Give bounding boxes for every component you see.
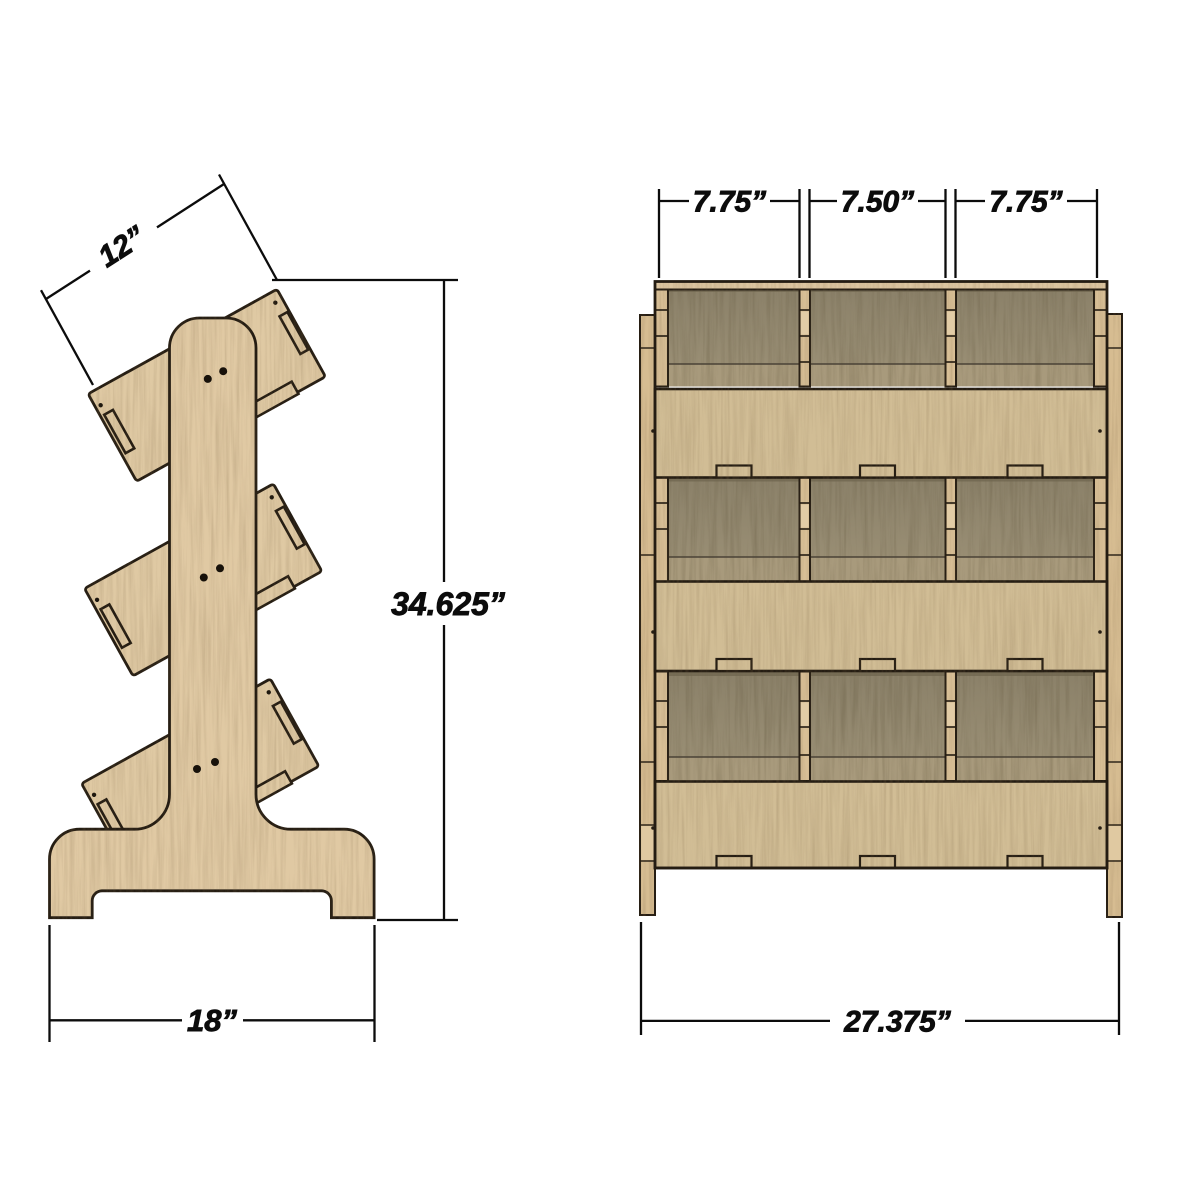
svg-text:27.375”: 27.375” [843, 1006, 951, 1039]
svg-text:12”: 12” [93, 220, 152, 274]
svg-text:7.75”: 7.75” [989, 186, 1062, 219]
svg-text:7.75”: 7.75” [693, 186, 766, 219]
svg-text:18”: 18” [187, 1003, 237, 1038]
svg-text:7.50”: 7.50” [841, 186, 914, 219]
svg-text:34.625”: 34.625” [391, 586, 505, 622]
